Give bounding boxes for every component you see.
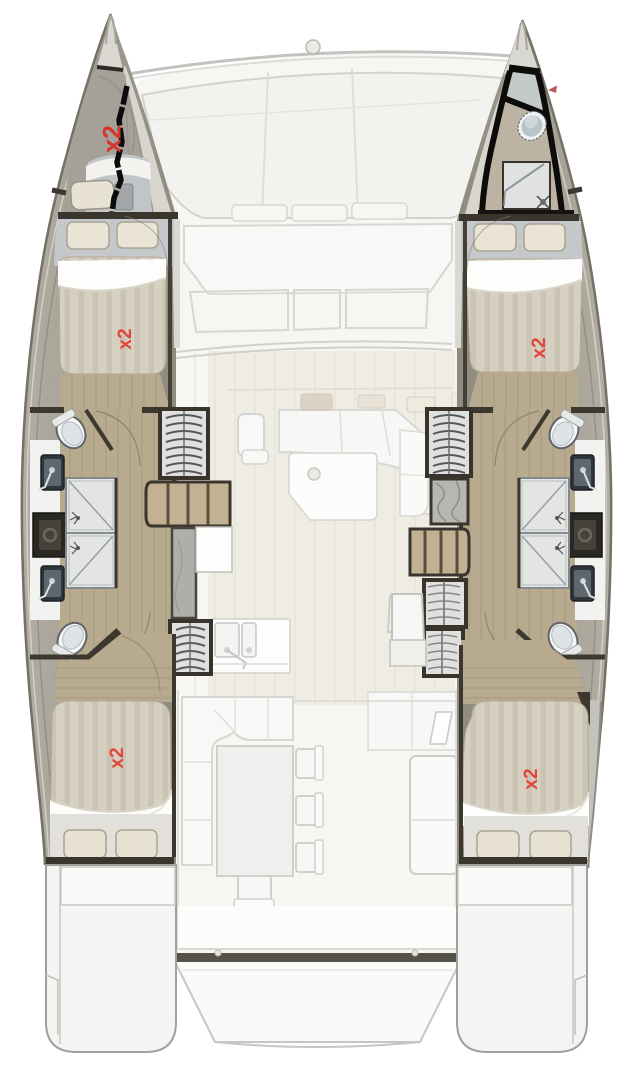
svg-text:x2: x2: [529, 337, 550, 358]
svg-text:x2: x2: [99, 125, 127, 153]
svg-text:x2: x2: [115, 328, 136, 349]
svg-text:x2: x2: [521, 768, 542, 789]
svg-text:x2: x2: [107, 747, 128, 768]
